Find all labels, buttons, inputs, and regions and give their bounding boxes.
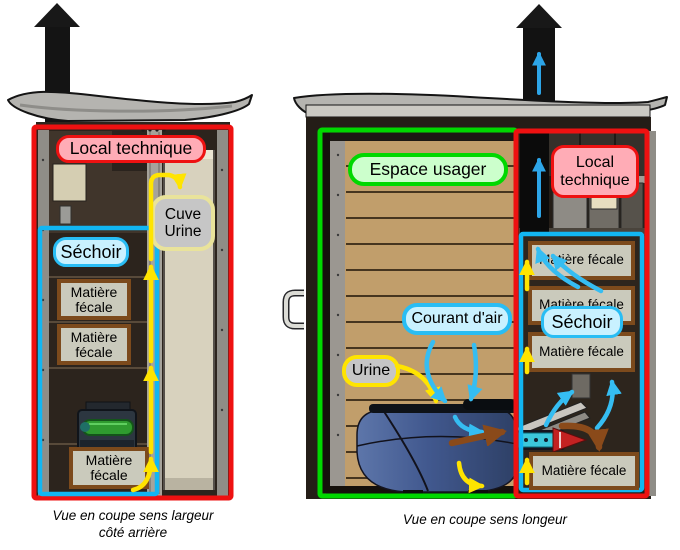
label-espace-usager: Espace usager xyxy=(348,153,508,186)
caption-right-view: Vue en coupe sens longeur xyxy=(350,512,620,529)
door-handle xyxy=(286,293,304,326)
label-sechoir-right: Séchoir xyxy=(541,306,623,338)
fecal-box-right-3: Matière fécale xyxy=(528,332,635,372)
label-courant-air: Courant d'air xyxy=(402,303,512,335)
label-local-technique-left: Local technique xyxy=(56,135,206,163)
left-figure-art xyxy=(8,3,252,498)
fecal-box-left-3: Matière fécale xyxy=(69,447,149,489)
label-cuve-urine: Cuve Urine xyxy=(151,195,215,251)
fecal-box-right-4: Matière fécale xyxy=(529,452,639,490)
label-sechoir-left: Séchoir xyxy=(53,237,129,267)
label-urine: Urine xyxy=(342,355,400,387)
diagram-canvas: Local technique Cuve Urine Séchoir Matiè… xyxy=(0,0,680,550)
caption-left-view: Vue en coupe sens largeur côté arrière xyxy=(8,508,258,542)
label-local-technique-right: Local technique xyxy=(551,145,639,198)
fecal-box-right-1: Matière fécale xyxy=(528,241,635,280)
right-roof-fascia xyxy=(306,105,650,117)
fecal-box-left-2: Matière fécale xyxy=(57,324,131,365)
toilet-bowl xyxy=(357,399,518,495)
fecal-box-left-1: Matière fécale xyxy=(57,279,131,320)
